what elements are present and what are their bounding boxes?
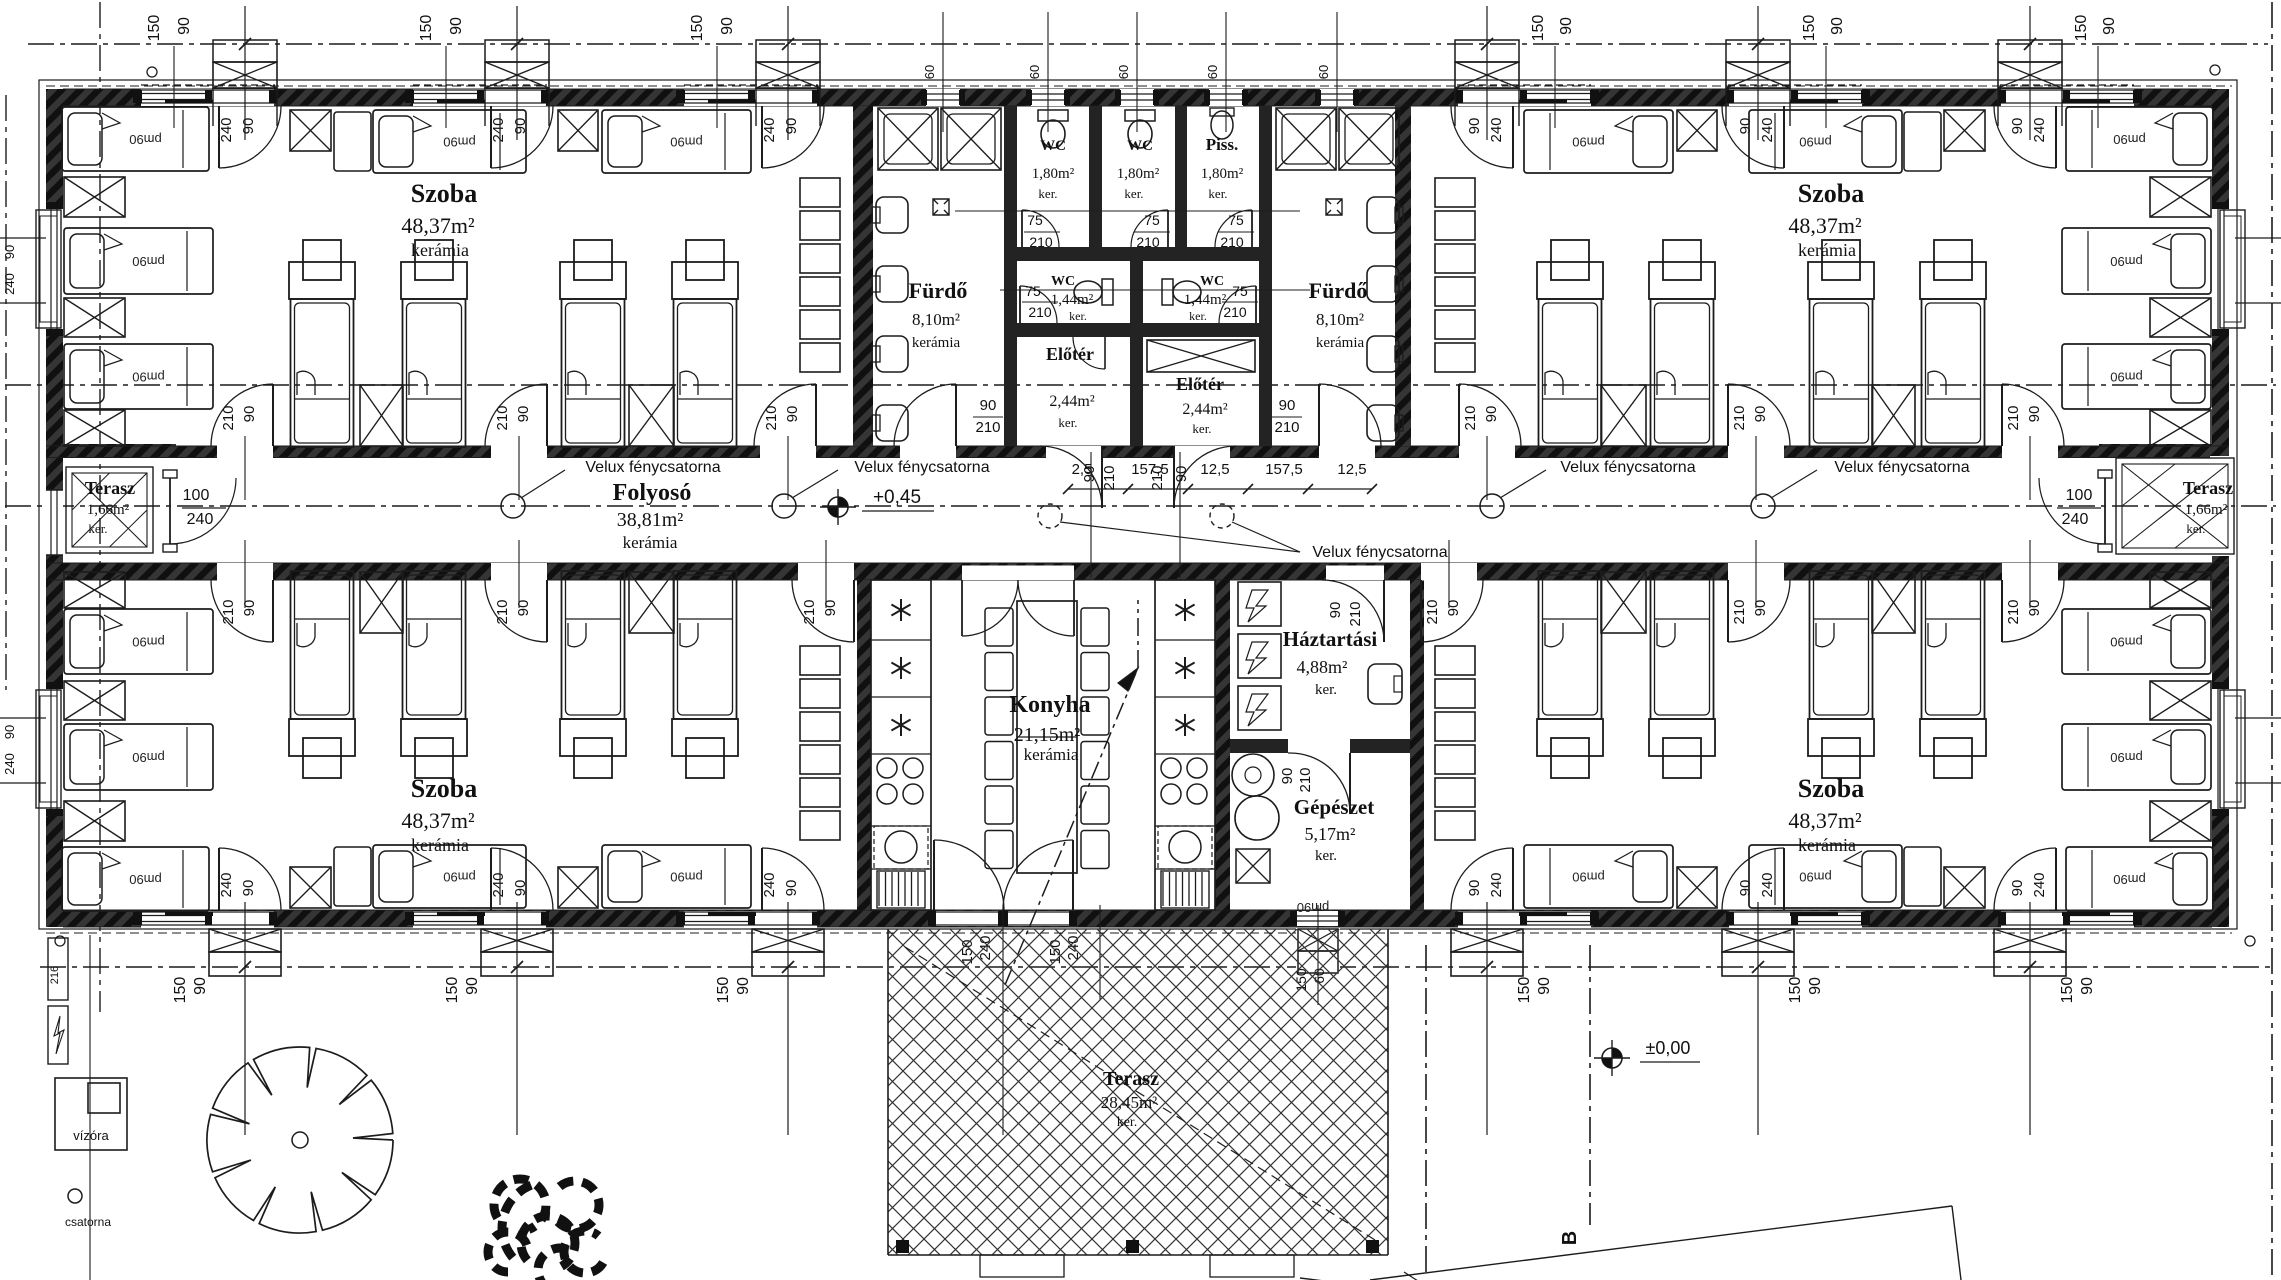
- svg-text:150: 150: [1801, 15, 1818, 42]
- svg-text:48,37m²: 48,37m²: [1788, 213, 1862, 238]
- svg-text:210: 210: [1731, 599, 1748, 624]
- svg-text:90: 90: [240, 118, 257, 135]
- svg-text:90: 90: [1807, 977, 1824, 995]
- svg-text:90: 90: [1279, 768, 1296, 785]
- svg-text:90: 90: [2, 245, 17, 259]
- svg-text:1,44m²: 1,44m²: [1051, 292, 1094, 308]
- svg-text:210: 210: [220, 599, 237, 624]
- svg-text:Terasz: Terasz: [1103, 1068, 1159, 1090]
- svg-text:pm90: pm90: [1799, 135, 1832, 150]
- svg-text:1,80m²: 1,80m²: [1117, 166, 1160, 182]
- svg-text:ker.: ker.: [1058, 415, 1077, 430]
- svg-text:8,10m²: 8,10m²: [1316, 310, 1364, 329]
- svg-text:157,5: 157,5: [1265, 461, 1303, 478]
- svg-text:90: 90: [2026, 406, 2043, 423]
- svg-text:157,5: 157,5: [1131, 461, 1169, 478]
- svg-text:Folyosó: Folyosó: [613, 480, 692, 506]
- svg-text:240: 240: [1488, 872, 1505, 897]
- svg-text:Velux fénycsatorna: Velux fénycsatorna: [1560, 459, 1695, 476]
- svg-text:60: 60: [1205, 65, 1220, 79]
- svg-text:90: 90: [2101, 17, 2118, 35]
- svg-text:210: 210: [1136, 234, 1160, 250]
- svg-text:ker.: ker.: [1038, 186, 1057, 201]
- svg-text:Szoba: Szoba: [411, 774, 477, 803]
- svg-text:kerámia: kerámia: [912, 335, 961, 351]
- svg-text:150: 150: [2059, 977, 2076, 1004]
- svg-text:1,80m²: 1,80m²: [1201, 166, 1244, 182]
- svg-text:210: 210: [975, 419, 1000, 436]
- svg-text:pm90: pm90: [132, 750, 165, 765]
- svg-text:90: 90: [783, 880, 800, 897]
- svg-text:pm90: pm90: [2110, 750, 2143, 765]
- svg-text:210: 210: [763, 405, 780, 430]
- svg-text:csatorna: csatorna: [65, 1215, 111, 1229]
- svg-text:210: 210: [1347, 601, 1364, 626]
- svg-text:90: 90: [2, 725, 17, 739]
- svg-text:240: 240: [2062, 511, 2089, 528]
- svg-text:pm90: pm90: [1572, 135, 1605, 150]
- svg-text:kerámia: kerámia: [1798, 240, 1856, 260]
- svg-text:75: 75: [1025, 283, 1041, 299]
- svg-text:90: 90: [241, 406, 258, 423]
- svg-text:90: 90: [241, 600, 258, 617]
- svg-text:pm90: pm90: [129, 872, 162, 887]
- svg-text:ker.: ker.: [1117, 1115, 1138, 1130]
- svg-text:Háztartási: Háztartási: [1283, 627, 1378, 651]
- svg-text:150: 150: [418, 15, 435, 42]
- svg-text:Előtér: Előtér: [1176, 374, 1224, 394]
- svg-text:90: 90: [1737, 118, 1754, 135]
- svg-text:ker.: ker.: [1124, 186, 1143, 201]
- svg-text:48,37m²: 48,37m²: [401, 808, 475, 833]
- svg-text:Velux fénycsatorna: Velux fénycsatorna: [1312, 544, 1447, 561]
- svg-text:90: 90: [784, 406, 801, 423]
- svg-text:5,17m²: 5,17m²: [1305, 824, 1356, 844]
- svg-text:ker.: ker.: [88, 521, 107, 536]
- svg-text:WC: WC: [1200, 274, 1224, 289]
- svg-text:kerámia: kerámia: [411, 835, 469, 855]
- svg-text:90: 90: [783, 118, 800, 135]
- svg-text:kerámia: kerámia: [1798, 835, 1856, 855]
- svg-text:90: 90: [822, 600, 839, 617]
- svg-text:pm90: pm90: [1572, 870, 1605, 885]
- svg-text:WC: WC: [1127, 138, 1153, 154]
- svg-text:100: 100: [183, 487, 210, 504]
- svg-text:pm90: pm90: [443, 135, 476, 150]
- svg-text:vízóra: vízóra: [73, 1128, 109, 1143]
- svg-text:Szoba: Szoba: [1798, 179, 1864, 208]
- svg-text:75: 75: [1144, 212, 1160, 228]
- svg-text:12,5: 12,5: [1200, 461, 1229, 478]
- svg-text:kerámia: kerámia: [411, 240, 469, 260]
- svg-text:150: 150: [2073, 15, 2090, 42]
- svg-text:±0,00: ±0,00: [1646, 1038, 1691, 1058]
- svg-text:Velux fénycsatorna: Velux fénycsatorna: [585, 459, 720, 476]
- svg-text:4,88m²: 4,88m²: [1297, 657, 1348, 677]
- svg-text:90: 90: [2026, 600, 2043, 617]
- svg-text:240: 240: [761, 117, 778, 142]
- svg-text:ker.: ker.: [1208, 186, 1227, 201]
- svg-text:21,15m²: 21,15m²: [1014, 724, 1081, 746]
- svg-text:240: 240: [2, 273, 17, 295]
- svg-text:90: 90: [1173, 466, 1190, 483]
- svg-text:210: 210: [1101, 465, 1118, 490]
- svg-text:Szoba: Szoba: [1798, 774, 1864, 803]
- svg-text:Terasz: Terasz: [2183, 478, 2233, 498]
- svg-text:1,80m²: 1,80m²: [1032, 166, 1075, 182]
- svg-text:150: 150: [715, 977, 732, 1004]
- svg-text:Fürdő: Fürdő: [909, 278, 968, 303]
- svg-text:210: 210: [1424, 599, 1441, 624]
- svg-text:Fürdő: Fürdő: [1309, 278, 1368, 303]
- svg-text:90: 90: [1483, 406, 1500, 423]
- svg-text:ker.: ker.: [1192, 421, 1211, 436]
- svg-text:240: 240: [2, 753, 17, 775]
- svg-text:90: 90: [515, 600, 532, 617]
- svg-text:pm90: pm90: [670, 870, 703, 885]
- svg-text:90: 90: [735, 977, 752, 995]
- svg-text:90: 90: [240, 880, 257, 897]
- svg-text:pm90: pm90: [129, 132, 162, 147]
- svg-text:1,66m²: 1,66m²: [2185, 502, 2228, 518]
- svg-text:38,81m²: 38,81m²: [617, 509, 684, 531]
- svg-text:150: 150: [1787, 977, 1804, 1004]
- svg-text:pm90: pm90: [2113, 872, 2146, 887]
- svg-text:100: 100: [2066, 487, 2093, 504]
- svg-text:Konyha: Konyha: [1009, 692, 1090, 718]
- svg-text:210: 210: [1297, 767, 1314, 792]
- svg-text:ker.: ker.: [1315, 682, 1337, 698]
- svg-text:kerámia: kerámia: [1316, 335, 1365, 351]
- svg-text:240: 240: [1759, 117, 1776, 142]
- svg-text:90: 90: [1752, 406, 1769, 423]
- svg-text:60: 60: [922, 65, 937, 79]
- svg-text:90: 90: [1829, 17, 1846, 35]
- svg-text:Előtér: Előtér: [1046, 344, 1094, 364]
- svg-text:90: 90: [1737, 880, 1754, 897]
- svg-text:Szoba: Szoba: [411, 179, 477, 208]
- svg-text:ker.: ker.: [1315, 848, 1337, 864]
- svg-text:WC: WC: [1040, 138, 1066, 154]
- svg-text:210: 210: [801, 599, 818, 624]
- svg-text:240: 240: [218, 872, 235, 897]
- svg-text:210: 210: [1223, 304, 1247, 320]
- svg-text:pm90: pm90: [2110, 254, 2143, 269]
- svg-text:pm90: pm90: [132, 635, 165, 650]
- svg-text:210: 210: [1029, 234, 1053, 250]
- svg-text:90: 90: [192, 977, 209, 995]
- svg-text:210: 210: [220, 405, 237, 430]
- svg-text:kerámia: kerámia: [623, 533, 678, 552]
- svg-text:Velux fénycsatorna: Velux fénycsatorna: [1834, 459, 1969, 476]
- svg-text:240: 240: [187, 511, 214, 528]
- svg-text:90: 90: [1536, 977, 1553, 995]
- svg-text:48,37m²: 48,37m²: [1788, 808, 1862, 833]
- svg-text:60: 60: [1116, 65, 1131, 79]
- svg-text:B: B: [1559, 1231, 1581, 1245]
- svg-text:90: 90: [176, 17, 193, 35]
- svg-text:240: 240: [1759, 872, 1776, 897]
- svg-text:ker.: ker.: [1069, 309, 1087, 323]
- svg-text:pm90: pm90: [2113, 132, 2146, 147]
- svg-text:90: 90: [448, 17, 465, 35]
- svg-text:Piss.: Piss.: [1206, 135, 1239, 154]
- svg-text:Terasz: Terasz: [85, 478, 135, 498]
- svg-text:pm90: pm90: [2110, 635, 2143, 650]
- svg-text:pm90: pm90: [670, 135, 703, 150]
- svg-text:ker.: ker.: [1189, 309, 1207, 323]
- svg-text:Velux fénycsatorna: Velux fénycsatorna: [854, 459, 989, 476]
- svg-text:WC: WC: [1051, 274, 1075, 289]
- svg-text:90: 90: [2009, 880, 2026, 897]
- svg-text:90: 90: [980, 397, 997, 414]
- svg-text:12,5: 12,5: [1337, 461, 1366, 478]
- svg-text:210: 210: [1220, 234, 1244, 250]
- svg-text:90: 90: [1466, 118, 1483, 135]
- svg-text:75: 75: [1232, 283, 1248, 299]
- svg-text:2,5: 2,5: [1072, 461, 1093, 478]
- svg-text:8,10m²: 8,10m²: [912, 310, 960, 329]
- svg-text:240: 240: [761, 872, 778, 897]
- svg-text:1,44m²: 1,44m²: [1184, 292, 1227, 308]
- svg-text:ker.: ker.: [2186, 521, 2205, 536]
- svg-text:150: 150: [444, 977, 461, 1004]
- svg-text:150: 150: [1516, 977, 1533, 1004]
- svg-text:+0,45: +0,45: [873, 487, 921, 508]
- svg-text:90: 90: [2079, 977, 2096, 995]
- svg-text:216: 216: [49, 966, 61, 984]
- svg-text:90: 90: [464, 977, 481, 995]
- svg-text:240: 240: [2031, 872, 2048, 897]
- svg-text:pm90: pm90: [443, 870, 476, 885]
- svg-text:240: 240: [2031, 117, 2048, 142]
- svg-text:pm90: pm90: [1799, 870, 1832, 885]
- svg-text:210: 210: [2005, 599, 2022, 624]
- svg-text:240: 240: [1488, 117, 1505, 142]
- svg-text:1,66m²: 1,66m²: [87, 502, 130, 518]
- svg-text:150: 150: [172, 977, 189, 1004]
- svg-text:90: 90: [1558, 17, 1575, 35]
- svg-text:210: 210: [494, 405, 511, 430]
- svg-text:90: 90: [719, 17, 736, 35]
- svg-text:210: 210: [494, 599, 511, 624]
- svg-text:90: 90: [1466, 880, 1483, 897]
- svg-text:150: 150: [689, 15, 706, 42]
- svg-text:2,44m²: 2,44m²: [1182, 401, 1227, 418]
- svg-text:kerámia: kerámia: [1024, 745, 1079, 764]
- svg-text:28,45m²: 28,45m²: [1101, 1093, 1158, 1112]
- svg-text:240: 240: [490, 872, 507, 897]
- svg-text:90: 90: [2009, 118, 2026, 135]
- svg-text:90: 90: [515, 406, 532, 423]
- svg-text:75: 75: [1027, 212, 1043, 228]
- svg-text:2,44m²: 2,44m²: [1049, 393, 1094, 410]
- svg-text:75: 75: [1228, 212, 1244, 228]
- svg-text:210: 210: [1462, 405, 1479, 430]
- svg-text:210: 210: [2005, 405, 2022, 430]
- svg-text:60: 60: [1316, 65, 1331, 79]
- svg-text:90: 90: [1445, 600, 1462, 617]
- svg-text:150: 150: [146, 15, 163, 42]
- svg-text:240: 240: [218, 117, 235, 142]
- svg-text:90: 90: [1327, 602, 1344, 619]
- svg-text:90: 90: [1752, 600, 1769, 617]
- svg-text:48,37m²: 48,37m²: [401, 213, 475, 238]
- svg-text:90: 90: [1279, 397, 1296, 414]
- svg-text:pm90: pm90: [1297, 900, 1330, 915]
- svg-text:210: 210: [1274, 419, 1299, 436]
- svg-text:150: 150: [1530, 15, 1547, 42]
- svg-text:pm90: pm90: [132, 254, 165, 269]
- svg-text:Gépészet: Gépészet: [1294, 795, 1374, 819]
- svg-text:pm90: pm90: [2110, 370, 2143, 385]
- svg-text:240: 240: [490, 117, 507, 142]
- svg-text:pm90: pm90: [132, 370, 165, 385]
- svg-text:60: 60: [1027, 65, 1042, 79]
- svg-text:210: 210: [1731, 405, 1748, 430]
- svg-text:210: 210: [1028, 304, 1052, 320]
